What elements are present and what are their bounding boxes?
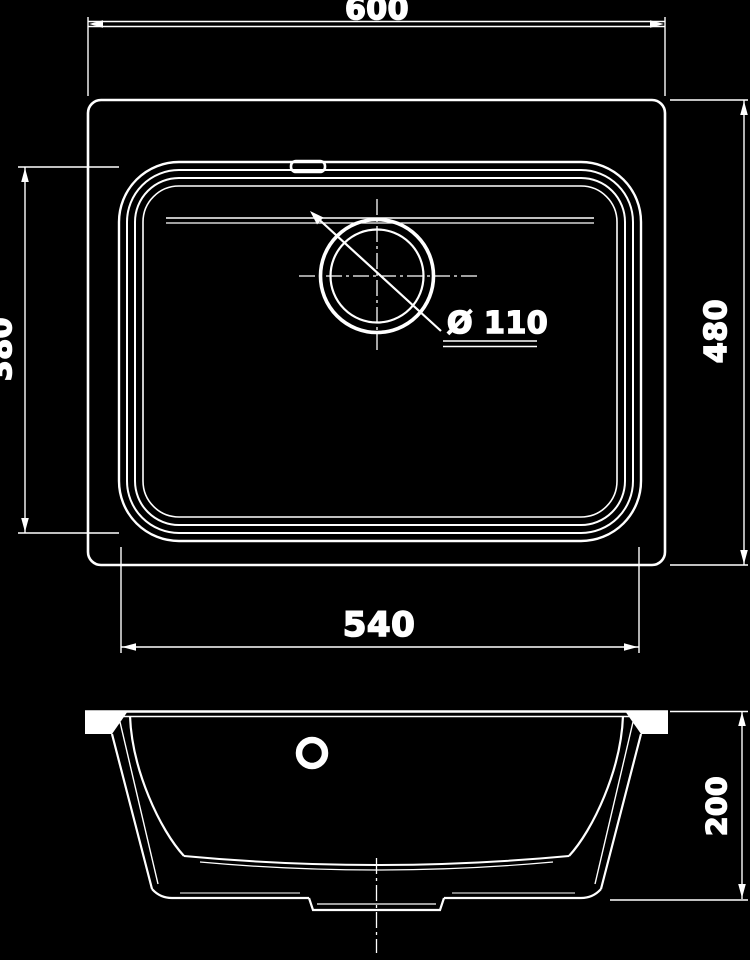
bowl-contour-2 xyxy=(127,170,633,533)
dim-arrow-icon xyxy=(738,712,746,726)
dimension-bowl-width: 540 xyxy=(121,547,639,653)
bowl-width-label: 540 xyxy=(343,605,415,645)
overall-width-label: 600 xyxy=(345,0,409,27)
bowl-height-label: 200 xyxy=(700,776,733,836)
overall-depth-label: 480 xyxy=(699,299,734,363)
dim-arrow-icon xyxy=(624,643,638,651)
dimension-overall-width: 600 xyxy=(88,0,665,96)
dim-arrow-icon xyxy=(21,168,29,182)
top-view: Ø 110 600 480 380 xyxy=(0,0,748,653)
dimension-drain-diameter: Ø 110 xyxy=(310,211,548,347)
hole-ring xyxy=(299,740,325,766)
technical-drawing-page: Ø 110 600 480 380 xyxy=(0,0,750,960)
bowl-depth-label: 380 xyxy=(0,317,19,381)
sink-technical-drawing: Ø 110 600 480 380 xyxy=(0,0,750,960)
dim-arrow-icon xyxy=(740,550,748,564)
dimension-bowl-height: 200 xyxy=(610,711,748,900)
dim-arrow-icon xyxy=(122,643,136,651)
bowl-contour-4 xyxy=(143,186,617,517)
right-wall-outer xyxy=(601,734,641,889)
dim-arrow-icon xyxy=(740,101,748,115)
side-view: 200 xyxy=(85,711,748,953)
dimension-bowl-depth: 380 xyxy=(0,167,119,533)
dimension-overall-depth: 480 xyxy=(670,100,748,565)
dim-arrow-icon xyxy=(21,518,29,532)
dim-arrow-icon xyxy=(738,884,746,898)
left-wall-outer xyxy=(112,734,152,889)
drain-diameter-label: Ø 110 xyxy=(447,306,548,341)
